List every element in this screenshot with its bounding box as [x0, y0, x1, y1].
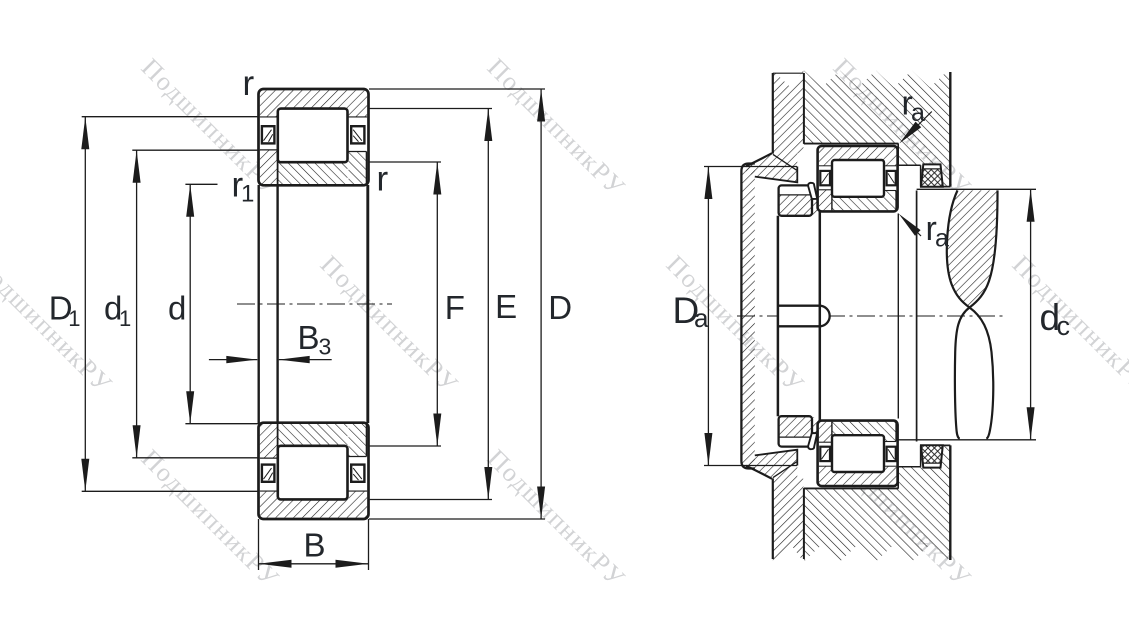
svg-text:a: a: [935, 225, 949, 253]
svg-text:E: E: [495, 288, 517, 325]
svg-text:1: 1: [119, 306, 131, 331]
svg-text:1: 1: [68, 306, 80, 331]
svg-text:B: B: [298, 319, 320, 356]
svg-text:c: c: [1057, 311, 1071, 341]
svg-text:a: a: [694, 303, 709, 333]
svg-text:3: 3: [319, 334, 332, 360]
svg-text:1: 1: [241, 181, 254, 208]
svg-text:d: d: [168, 290, 186, 327]
svg-text:B: B: [304, 527, 326, 564]
svg-text:r: r: [243, 64, 255, 103]
svg-text:F: F: [445, 289, 465, 326]
svg-text:a: a: [911, 99, 925, 127]
svg-text:D: D: [548, 289, 572, 326]
svg-text:r: r: [377, 160, 389, 199]
